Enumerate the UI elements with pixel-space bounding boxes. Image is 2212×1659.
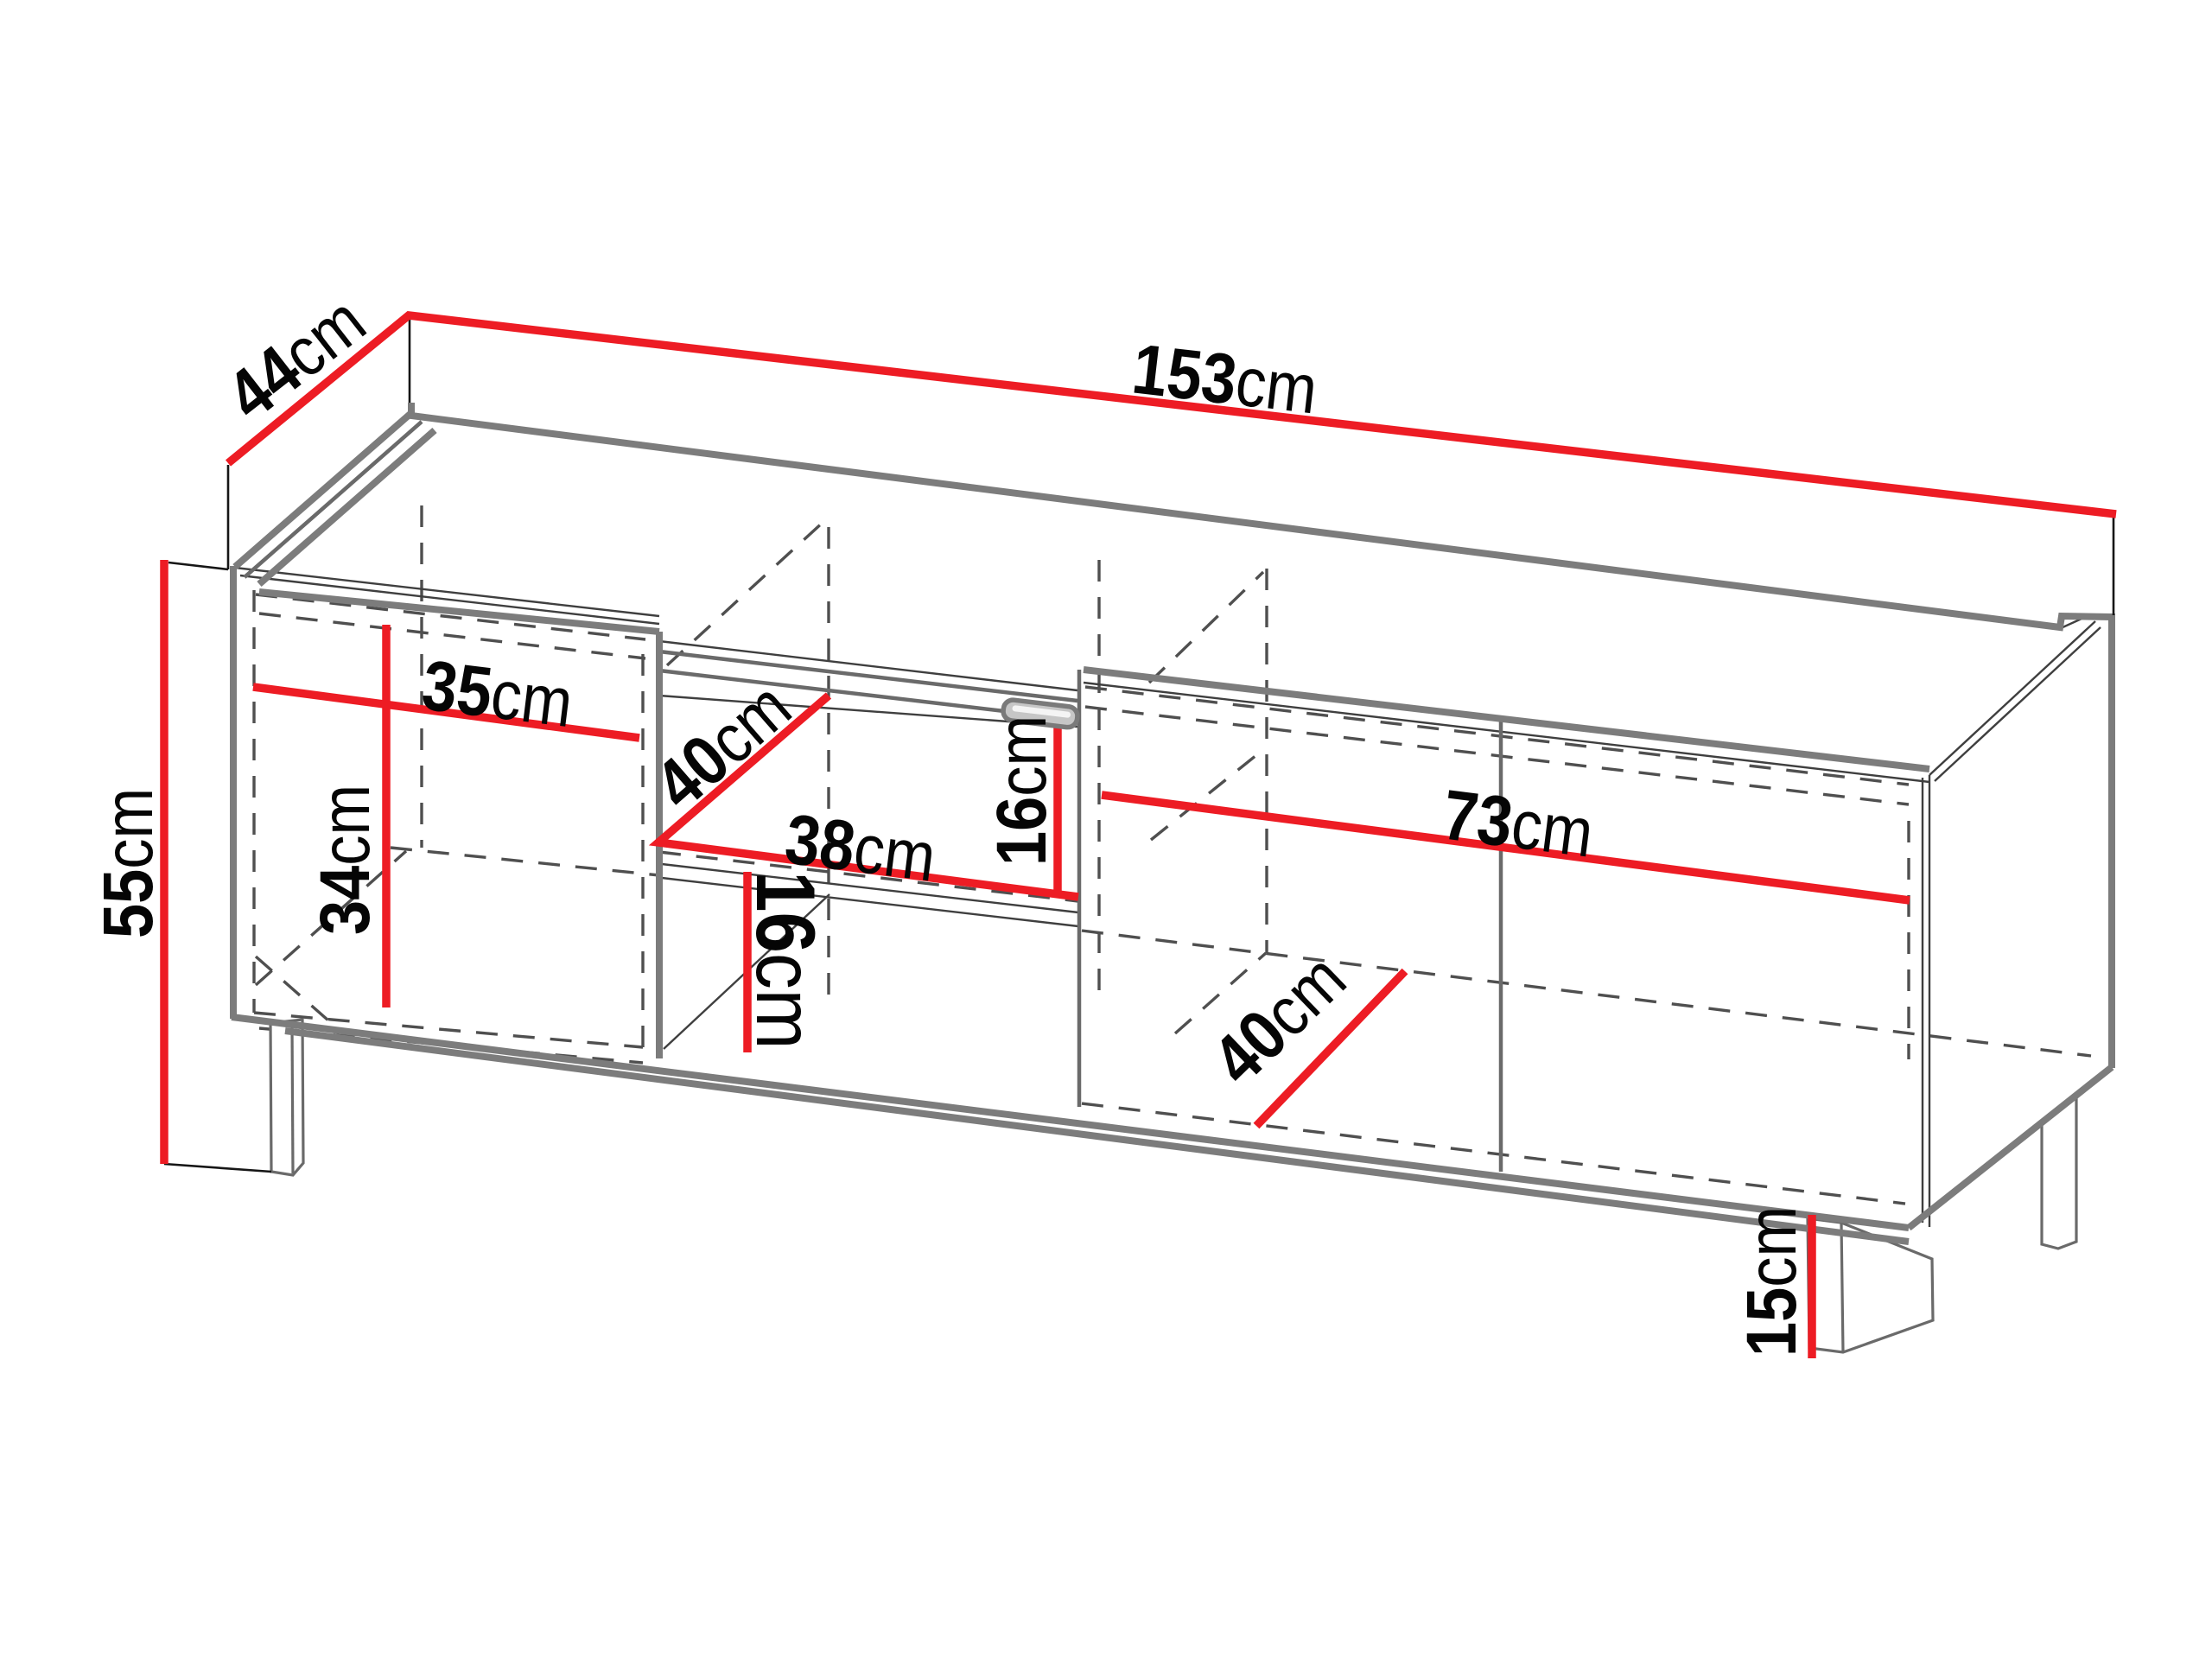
svg-text:34cm: 34cm [306,785,385,935]
svg-text:16cm: 16cm [739,871,832,1049]
svg-text:16cm: 16cm [982,715,1061,866]
svg-text:15cm: 15cm [1732,1206,1811,1357]
svg-text:55cm: 55cm [89,788,168,938]
